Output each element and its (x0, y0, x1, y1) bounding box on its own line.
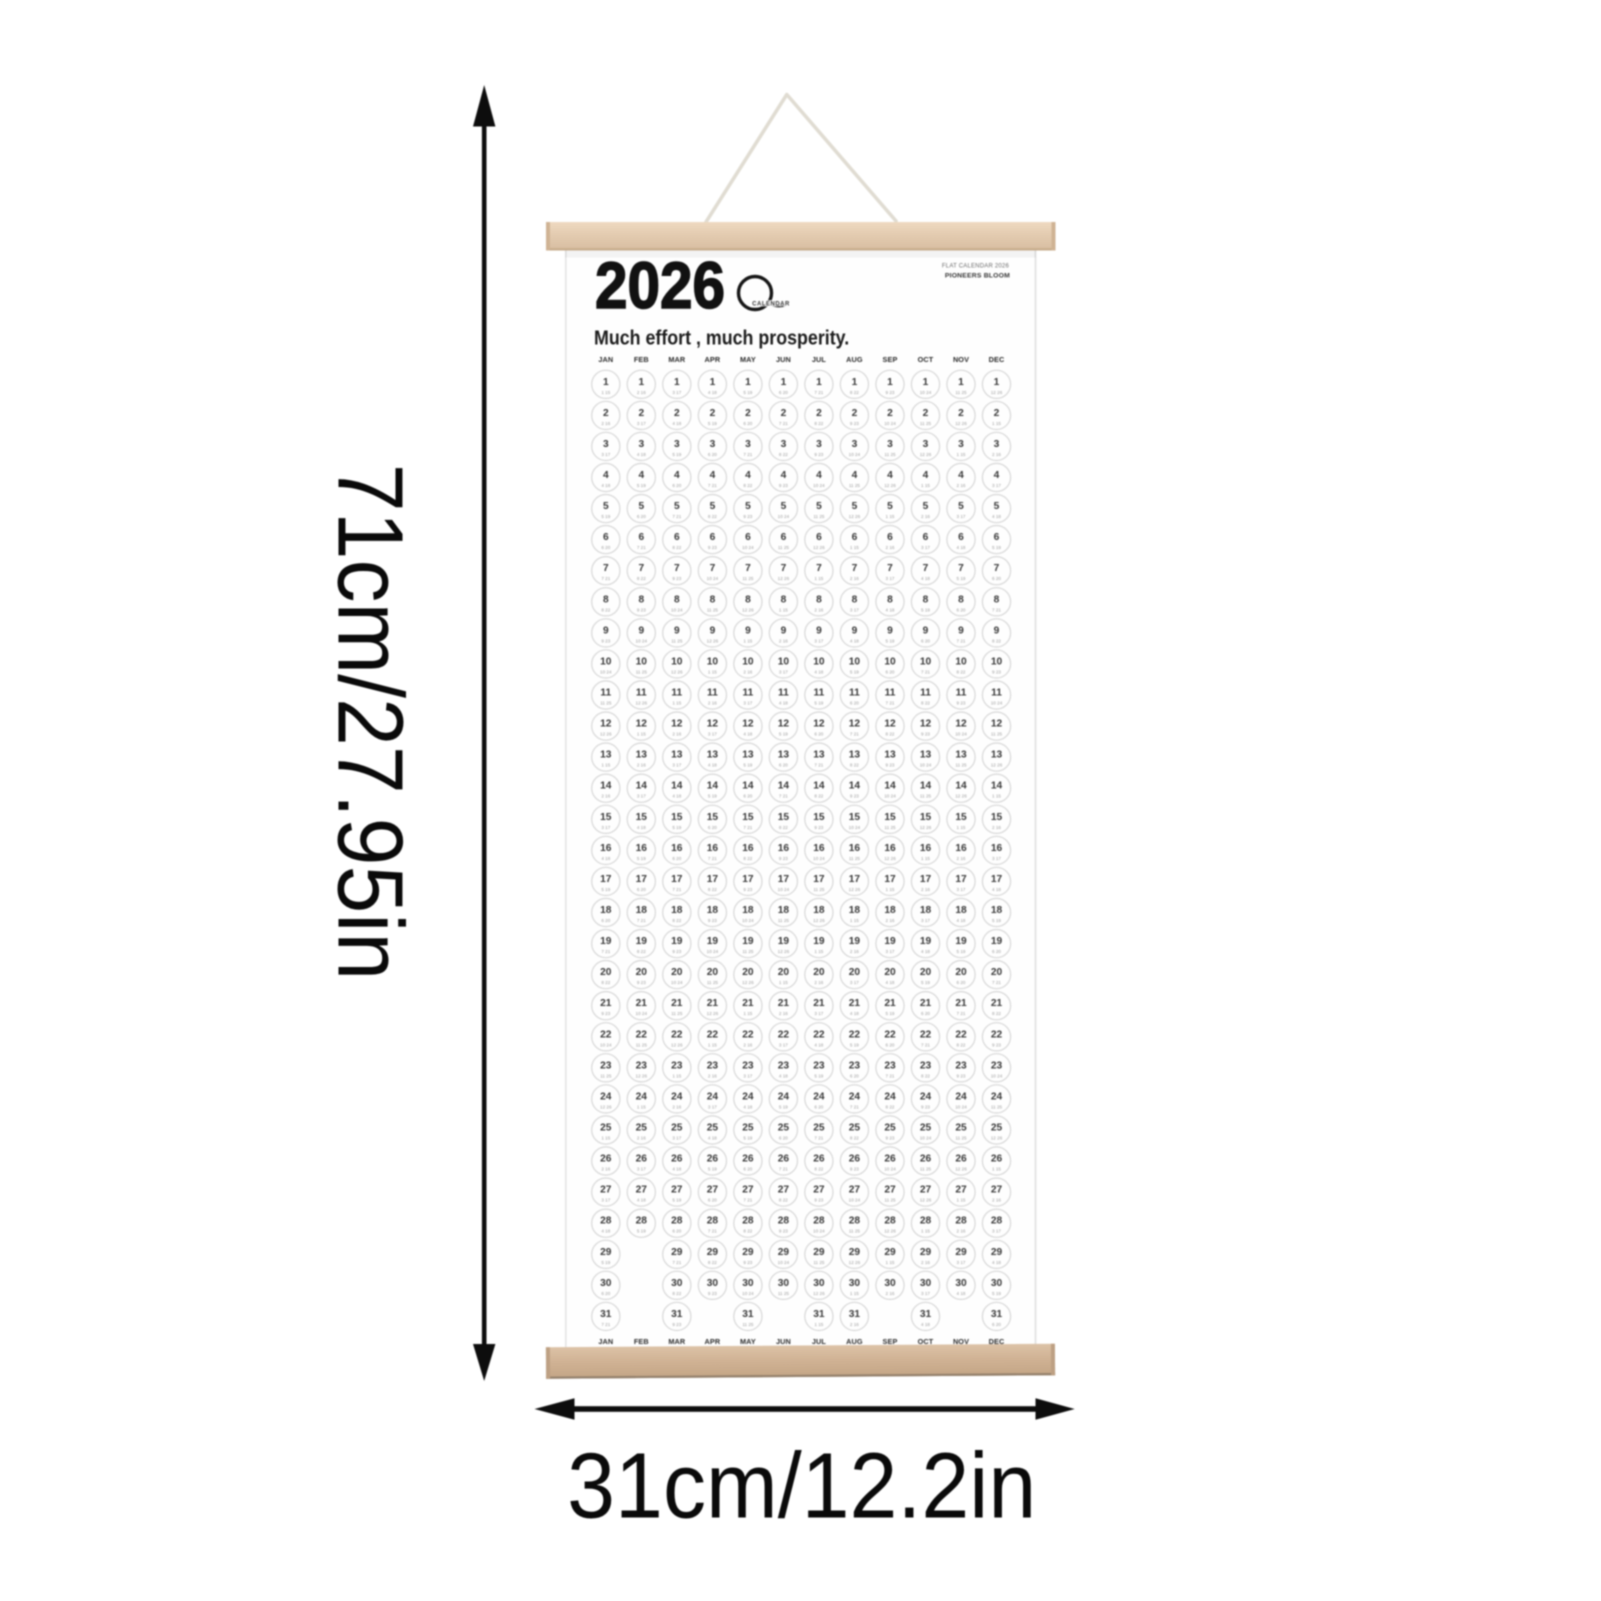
svg-text:5 19: 5 19 (743, 1136, 752, 1141)
svg-text:4 18: 4 18 (992, 1260, 1001, 1265)
svg-text:8 22: 8 22 (921, 1073, 930, 1078)
svg-text:10 24: 10 24 (707, 576, 719, 581)
svg-text:2: 2 (816, 408, 822, 419)
svg-text:21: 21 (707, 998, 719, 1009)
svg-text:6 20: 6 20 (708, 825, 717, 830)
svg-text:3: 3 (816, 439, 822, 450)
svg-text:29: 29 (707, 1247, 719, 1258)
svg-text:12 26: 12 26 (600, 732, 612, 737)
svg-text:8 22: 8 22 (850, 1136, 859, 1141)
svg-text:13: 13 (671, 750, 683, 761)
svg-text:3 17: 3 17 (850, 607, 859, 612)
svg-text:4 18: 4 18 (886, 980, 895, 985)
svg-text:APR: APR (705, 1337, 721, 1346)
svg-text:11 25: 11 25 (742, 1322, 754, 1327)
svg-text:11: 11 (707, 688, 718, 699)
svg-text:JAN: JAN (598, 355, 613, 364)
svg-text:6: 6 (923, 532, 929, 543)
svg-text:3 17: 3 17 (708, 732, 717, 737)
svg-text:16: 16 (884, 843, 896, 854)
svg-text:8: 8 (923, 594, 929, 605)
svg-text:2 16: 2 16 (743, 669, 752, 674)
svg-text:2: 2 (958, 408, 964, 419)
svg-text:6 20: 6 20 (601, 1291, 610, 1296)
svg-text:1 15: 1 15 (886, 1260, 895, 1265)
svg-text:2 16: 2 16 (814, 980, 823, 985)
svg-text:23: 23 (671, 1060, 683, 1071)
svg-text:23: 23 (849, 1060, 861, 1071)
svg-text:JUL: JUL (812, 1337, 827, 1346)
svg-text:15: 15 (920, 812, 932, 823)
svg-text:4: 4 (852, 470, 858, 481)
svg-text:23: 23 (884, 1060, 896, 1071)
svg-text:14: 14 (849, 781, 861, 792)
svg-text:9 23: 9 23 (637, 980, 646, 985)
svg-text:27: 27 (884, 1185, 896, 1196)
svg-text:7 21: 7 21 (601, 576, 610, 581)
svg-text:16: 16 (742, 843, 754, 854)
svg-text:31: 31 (920, 1309, 932, 1320)
svg-text:5 19: 5 19 (814, 701, 823, 706)
svg-text:8 22: 8 22 (708, 1260, 717, 1265)
svg-text:7: 7 (781, 563, 787, 574)
svg-text:6 20: 6 20 (921, 1011, 930, 1016)
svg-text:11 25: 11 25 (636, 669, 648, 674)
svg-text:3 17: 3 17 (992, 856, 1001, 861)
svg-text:10 24: 10 24 (884, 1167, 896, 1172)
svg-text:27: 27 (920, 1185, 932, 1196)
svg-text:10 24: 10 24 (742, 545, 754, 550)
svg-text:30: 30 (920, 1278, 932, 1289)
svg-text:23: 23 (955, 1060, 967, 1071)
svg-text:18: 18 (884, 905, 896, 916)
svg-text:14: 14 (707, 781, 719, 792)
svg-text:10: 10 (671, 656, 683, 667)
svg-text:8 22: 8 22 (814, 794, 823, 799)
svg-text:8 22: 8 22 (743, 1229, 752, 1234)
svg-text:14: 14 (920, 781, 932, 792)
svg-text:6 20: 6 20 (850, 1073, 859, 1078)
svg-text:22: 22 (742, 1029, 754, 1040)
svg-text:9 23: 9 23 (921, 732, 930, 737)
svg-text:26: 26 (778, 1154, 790, 1165)
svg-text:9 23: 9 23 (672, 1322, 681, 1327)
svg-text:10 24: 10 24 (600, 669, 612, 674)
svg-text:7 21: 7 21 (708, 483, 717, 488)
svg-text:19: 19 (884, 936, 896, 947)
svg-text:1 15: 1 15 (601, 1136, 610, 1141)
svg-text:7: 7 (745, 563, 751, 574)
svg-text:9 23: 9 23 (601, 1011, 610, 1016)
svg-text:3 17: 3 17 (637, 794, 646, 799)
svg-text:25: 25 (991, 1123, 1003, 1134)
svg-text:7 21: 7 21 (957, 638, 966, 643)
svg-text:9 23: 9 23 (601, 638, 610, 643)
svg-text:10: 10 (955, 656, 967, 667)
svg-text:23: 23 (742, 1060, 754, 1071)
svg-text:1: 1 (710, 377, 716, 388)
svg-text:10: 10 (920, 656, 932, 667)
svg-text:4 18: 4 18 (708, 390, 717, 395)
svg-text:1 15: 1 15 (814, 576, 823, 581)
svg-text:SEP: SEP (883, 355, 898, 364)
svg-text:1: 1 (603, 377, 609, 388)
svg-text:9 23: 9 23 (850, 794, 859, 799)
svg-text:8 22: 8 22 (992, 638, 1001, 643)
svg-text:30: 30 (955, 1278, 967, 1289)
svg-text:4 18: 4 18 (708, 763, 717, 768)
svg-text:DEC: DEC (989, 355, 1005, 364)
svg-text:5: 5 (603, 501, 609, 512)
svg-text:11: 11 (956, 688, 967, 699)
svg-text:5 19: 5 19 (708, 421, 717, 426)
svg-text:9 23: 9 23 (672, 576, 681, 581)
svg-text:6 20: 6 20 (992, 1322, 1001, 1327)
svg-text:13: 13 (707, 750, 719, 761)
svg-text:9 23: 9 23 (779, 483, 788, 488)
svg-text:2 16: 2 16 (957, 483, 966, 488)
svg-text:1 15: 1 15 (814, 1322, 823, 1327)
svg-text:MAR: MAR (668, 355, 686, 364)
svg-text:14: 14 (991, 781, 1003, 792)
svg-text:5 19: 5 19 (637, 1229, 646, 1234)
svg-text:13: 13 (991, 750, 1003, 761)
svg-text:13: 13 (920, 750, 932, 761)
svg-text:8: 8 (994, 594, 1000, 605)
svg-text:4: 4 (674, 470, 680, 481)
svg-text:29: 29 (778, 1247, 790, 1258)
svg-text:11: 11 (885, 688, 896, 699)
svg-text:31: 31 (813, 1309, 825, 1320)
svg-text:20: 20 (600, 967, 612, 978)
svg-text:1: 1 (638, 377, 644, 388)
svg-text:6 20: 6 20 (672, 856, 681, 861)
svg-text:9 23: 9 23 (957, 1073, 966, 1078)
svg-text:11 25: 11 25 (955, 1136, 967, 1141)
svg-text:20: 20 (955, 967, 967, 978)
svg-text:2: 2 (994, 408, 1000, 419)
svg-text:11 25: 11 25 (849, 856, 861, 861)
svg-text:11 25: 11 25 (920, 421, 932, 426)
svg-text:6 20: 6 20 (992, 576, 1001, 581)
svg-text:14: 14 (955, 781, 967, 792)
svg-text:3 17: 3 17 (921, 918, 930, 923)
svg-text:13: 13 (813, 750, 825, 761)
svg-text:26: 26 (920, 1154, 932, 1165)
svg-text:22: 22 (671, 1029, 683, 1040)
svg-text:11 25: 11 25 (884, 452, 896, 457)
svg-text:4 18: 4 18 (921, 1322, 930, 1327)
svg-text:23: 23 (778, 1060, 790, 1071)
svg-text:1 15: 1 15 (957, 825, 966, 830)
svg-text:7: 7 (710, 563, 716, 574)
svg-text:16: 16 (600, 843, 612, 854)
svg-text:7: 7 (958, 563, 964, 574)
svg-text:5 19: 5 19 (921, 607, 930, 612)
svg-text:5 19: 5 19 (743, 763, 752, 768)
svg-text:71cm/27.95in: 71cm/27.95in (319, 464, 423, 980)
svg-text:28: 28 (955, 1216, 967, 1227)
svg-text:14: 14 (671, 781, 683, 792)
svg-text:8 22: 8 22 (992, 1011, 1001, 1016)
svg-text:11 25: 11 25 (991, 1104, 1003, 1109)
svg-text:13: 13 (955, 750, 967, 761)
svg-text:4 18: 4 18 (957, 545, 966, 550)
svg-text:19: 19 (671, 936, 683, 947)
svg-text:6 20: 6 20 (601, 918, 610, 923)
svg-text:7 21: 7 21 (708, 856, 717, 861)
svg-text:1: 1 (745, 377, 751, 388)
svg-text:9: 9 (958, 625, 964, 636)
svg-text:7 21: 7 21 (992, 607, 1001, 612)
svg-text:5 19: 5 19 (850, 669, 859, 674)
svg-text:12: 12 (671, 719, 683, 730)
svg-text:15: 15 (671, 812, 683, 823)
svg-text:10 24: 10 24 (955, 1104, 967, 1109)
svg-text:21: 21 (849, 998, 861, 1009)
svg-text:7: 7 (923, 563, 929, 574)
svg-text:15: 15 (742, 812, 754, 823)
svg-text:29: 29 (813, 1247, 825, 1258)
svg-text:16: 16 (955, 843, 967, 854)
svg-text:6 20: 6 20 (886, 1042, 895, 1047)
svg-text:4 18: 4 18 (601, 483, 610, 488)
svg-text:1 15: 1 15 (779, 607, 788, 612)
svg-text:28: 28 (991, 1216, 1003, 1227)
svg-text:27: 27 (742, 1185, 754, 1196)
svg-text:19: 19 (920, 936, 932, 947)
svg-text:10: 10 (742, 656, 754, 667)
svg-text:8: 8 (674, 594, 680, 605)
svg-text:8: 8 (887, 594, 893, 605)
svg-text:19: 19 (991, 936, 1003, 947)
svg-text:JUN: JUN (776, 355, 791, 364)
svg-text:6 20: 6 20 (637, 887, 646, 892)
svg-text:5 19: 5 19 (708, 794, 717, 799)
svg-text:21: 21 (991, 998, 1003, 1009)
svg-text:3 17: 3 17 (957, 514, 966, 519)
svg-text:19: 19 (849, 936, 861, 947)
svg-text:7 21: 7 21 (886, 701, 895, 706)
svg-text:26: 26 (813, 1154, 825, 1165)
svg-text:5 19: 5 19 (779, 1104, 788, 1109)
svg-text:1 15: 1 15 (814, 949, 823, 954)
svg-text:12 26: 12 26 (636, 701, 648, 706)
svg-text:8 22: 8 22 (850, 763, 859, 768)
svg-text:20: 20 (884, 967, 896, 978)
svg-text:20: 20 (742, 967, 754, 978)
svg-text:12 26: 12 26 (955, 421, 967, 426)
svg-text:2 16: 2 16 (708, 701, 717, 706)
svg-text:4 18: 4 18 (921, 576, 930, 581)
svg-text:19: 19 (636, 936, 648, 947)
svg-text:7 21: 7 21 (779, 794, 788, 799)
svg-text:12 26: 12 26 (920, 452, 932, 457)
svg-text:12 26: 12 26 (920, 825, 932, 830)
svg-text:5 19: 5 19 (814, 1073, 823, 1078)
svg-text:1 15: 1 15 (672, 1073, 681, 1078)
svg-text:4 18: 4 18 (637, 825, 646, 830)
svg-text:15: 15 (707, 812, 719, 823)
svg-text:11: 11 (991, 688, 1002, 699)
svg-text:7 21: 7 21 (779, 1167, 788, 1172)
svg-text:9 23: 9 23 (637, 607, 646, 612)
svg-text:12 26: 12 26 (813, 545, 825, 550)
svg-text:9 23: 9 23 (921, 1104, 930, 1109)
svg-text:30: 30 (991, 1278, 1003, 1289)
svg-text:7 21: 7 21 (850, 1104, 859, 1109)
svg-text:10 24: 10 24 (636, 638, 648, 643)
svg-text:25: 25 (742, 1123, 754, 1134)
svg-text:2 16: 2 16 (814, 607, 823, 612)
svg-text:16: 16 (991, 843, 1003, 854)
svg-text:3 17: 3 17 (814, 638, 823, 643)
svg-text:2 16: 2 16 (921, 514, 930, 519)
svg-text:27: 27 (849, 1185, 861, 1196)
svg-text:12 26: 12 26 (600, 1104, 612, 1109)
svg-text:7 21: 7 21 (743, 825, 752, 830)
svg-text:8 22: 8 22 (743, 856, 752, 861)
svg-text:29: 29 (600, 1247, 612, 1258)
svg-text:12 26: 12 26 (778, 576, 790, 581)
svg-text:11 25: 11 25 (778, 1291, 790, 1296)
svg-text:18: 18 (742, 905, 754, 916)
svg-text:31cm/12.2in: 31cm/12.2in (567, 1433, 1036, 1537)
svg-text:2 16: 2 16 (601, 794, 610, 799)
svg-text:18: 18 (849, 905, 861, 916)
svg-text:21: 21 (600, 998, 612, 1009)
svg-text:1 15: 1 15 (921, 483, 930, 488)
svg-text:1 15: 1 15 (850, 545, 859, 550)
svg-text:4 18: 4 18 (672, 794, 681, 799)
svg-text:4 18: 4 18 (814, 1042, 823, 1047)
svg-text:3 17: 3 17 (992, 1229, 1001, 1234)
svg-text:5: 5 (852, 501, 858, 512)
svg-text:9 23: 9 23 (743, 1260, 752, 1265)
svg-text:5 19: 5 19 (992, 1291, 1001, 1296)
svg-text:17: 17 (707, 874, 719, 885)
svg-text:1 15: 1 15 (743, 638, 752, 643)
svg-text:2: 2 (745, 408, 751, 419)
svg-text:3: 3 (710, 439, 716, 450)
svg-text:2: 2 (781, 408, 787, 419)
svg-text:13: 13 (884, 750, 896, 761)
svg-text:8 22: 8 22 (708, 887, 717, 892)
svg-text:24: 24 (813, 1091, 825, 1102)
svg-text:6 20: 6 20 (743, 421, 752, 426)
svg-text:12: 12 (636, 719, 648, 730)
svg-text:17: 17 (636, 874, 648, 885)
svg-text:28: 28 (671, 1216, 683, 1227)
svg-text:18: 18 (671, 905, 683, 916)
svg-text:7 21: 7 21 (779, 421, 788, 426)
svg-text:25: 25 (671, 1123, 683, 1134)
svg-text:5 19: 5 19 (601, 887, 610, 892)
svg-text:9 23: 9 23 (992, 669, 1001, 674)
svg-text:2 16: 2 16 (850, 576, 859, 581)
svg-text:12 26: 12 26 (671, 1042, 683, 1047)
svg-text:4 18: 4 18 (708, 1136, 717, 1141)
svg-text:4 18: 4 18 (601, 1229, 610, 1234)
svg-text:10 24: 10 24 (742, 1291, 754, 1296)
svg-text:13: 13 (742, 750, 754, 761)
svg-text:2 16: 2 16 (743, 1042, 752, 1047)
svg-text:2 16: 2 16 (992, 825, 1001, 830)
svg-text:6 20: 6 20 (850, 701, 859, 706)
svg-text:14: 14 (636, 781, 648, 792)
svg-text:10 24: 10 24 (671, 980, 683, 985)
svg-text:15: 15 (636, 812, 648, 823)
svg-text:1 15: 1 15 (886, 514, 895, 519)
svg-text:10: 10 (991, 656, 1003, 667)
svg-text:8 22: 8 22 (850, 390, 859, 395)
svg-text:17: 17 (884, 874, 896, 885)
svg-text:1 15: 1 15 (850, 918, 859, 923)
svg-text:9 23: 9 23 (957, 701, 966, 706)
svg-text:18: 18 (920, 905, 932, 916)
svg-text:10: 10 (849, 656, 861, 667)
svg-text:5 19: 5 19 (601, 1260, 610, 1265)
svg-text:18: 18 (778, 905, 790, 916)
svg-text:8: 8 (603, 594, 609, 605)
svg-text:8: 8 (710, 594, 716, 605)
svg-text:23: 23 (636, 1060, 648, 1071)
svg-text:31: 31 (742, 1309, 754, 1320)
svg-text:1 15: 1 15 (708, 1042, 717, 1047)
svg-text:15: 15 (849, 812, 861, 823)
svg-text:JAN: JAN (598, 1337, 613, 1346)
svg-text:6 20: 6 20 (601, 545, 610, 550)
svg-text:25: 25 (849, 1123, 861, 1134)
svg-text:11 25: 11 25 (955, 763, 967, 768)
svg-text:11 25: 11 25 (813, 887, 825, 892)
svg-text:13: 13 (849, 750, 861, 761)
svg-text:5: 5 (923, 501, 929, 512)
svg-text:7 21: 7 21 (743, 452, 752, 457)
svg-text:10: 10 (813, 656, 825, 667)
svg-text:7 21: 7 21 (814, 763, 823, 768)
svg-text:6 20: 6 20 (672, 1229, 681, 1234)
svg-text:11 25: 11 25 (742, 576, 754, 581)
svg-text:7 21: 7 21 (637, 918, 646, 923)
svg-text:7: 7 (887, 563, 893, 574)
svg-text:1 15: 1 15 (637, 1104, 646, 1109)
svg-text:11 25: 11 25 (671, 638, 683, 643)
svg-text:24: 24 (991, 1091, 1003, 1102)
svg-text:3: 3 (923, 439, 929, 450)
svg-text:20: 20 (813, 967, 825, 978)
svg-text:9 23: 9 23 (672, 949, 681, 954)
svg-text:7 21: 7 21 (637, 545, 646, 550)
svg-text:15: 15 (884, 812, 896, 823)
svg-text:10 24: 10 24 (778, 1260, 790, 1265)
svg-text:AUG: AUG (846, 355, 863, 364)
svg-text:11 25: 11 25 (671, 1011, 683, 1016)
svg-text:1: 1 (958, 377, 964, 388)
svg-text:5: 5 (674, 501, 680, 512)
svg-text:5: 5 (994, 501, 1000, 512)
svg-text:14: 14 (742, 781, 754, 792)
svg-text:25: 25 (707, 1123, 719, 1134)
svg-text:2 16: 2 16 (957, 856, 966, 861)
svg-text:2 16: 2 16 (637, 763, 646, 768)
svg-text:1 15: 1 15 (637, 732, 646, 737)
svg-text:6 20: 6 20 (743, 1167, 752, 1172)
svg-text:10 24: 10 24 (849, 452, 861, 457)
svg-text:10 24: 10 24 (991, 701, 1003, 706)
svg-text:8: 8 (852, 594, 858, 605)
svg-text:22: 22 (636, 1029, 648, 1040)
